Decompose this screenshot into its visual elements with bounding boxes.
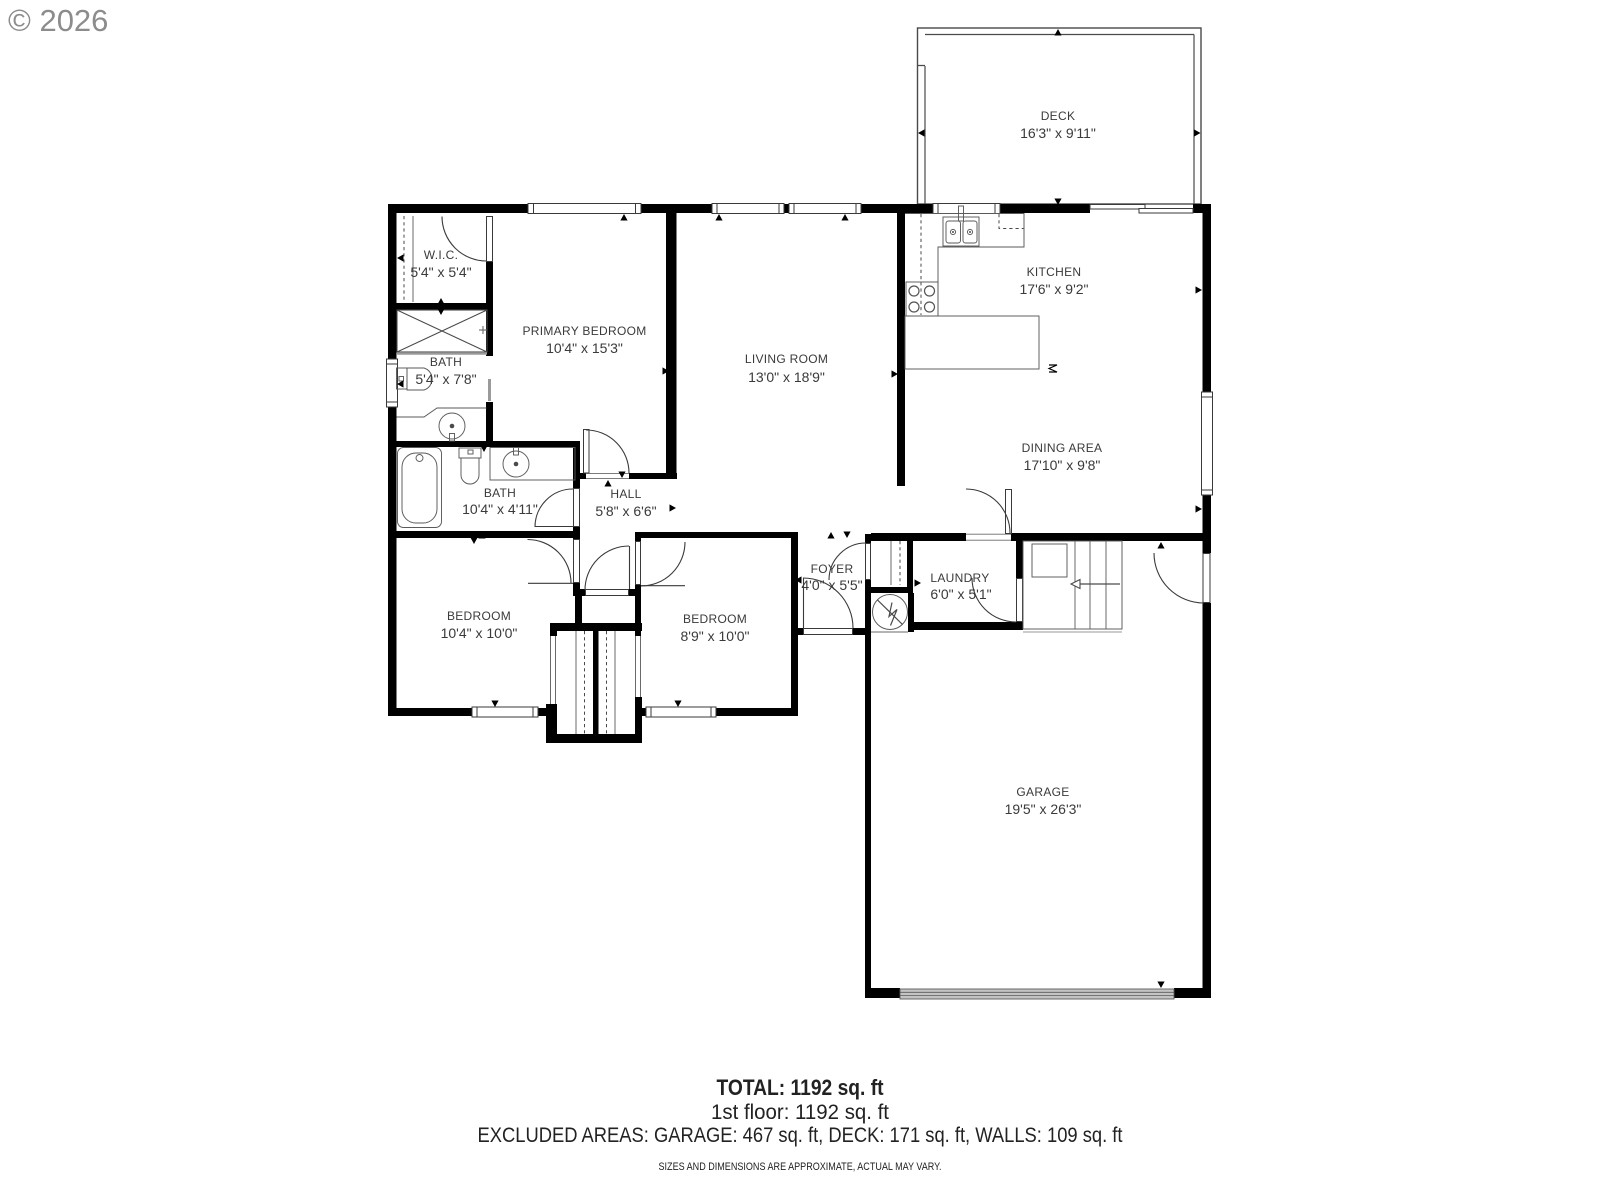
svg-text:8'9" x 10'0": 8'9" x 10'0" (681, 628, 750, 644)
svg-text:KITCHEN: KITCHEN (1027, 265, 1082, 279)
svg-text:16'3" x 9'11": 16'3" x 9'11" (1020, 125, 1096, 141)
svg-text:17'10" x 9'8": 17'10" x 9'8" (1024, 457, 1101, 473)
svg-text:10'4" x 15'3": 10'4" x 15'3" (546, 340, 623, 356)
svg-text:SIZES AND DIMENSIONS ARE APPRO: SIZES AND DIMENSIONS ARE APPROXIMATE, AC… (659, 1161, 942, 1173)
svg-text:5'8" x 6'6": 5'8" x 6'6" (595, 503, 656, 519)
svg-text:FOYER: FOYER (811, 562, 854, 576)
svg-text:LAUNDRY: LAUNDRY (930, 571, 989, 585)
svg-text:BEDROOM: BEDROOM (447, 609, 511, 623)
svg-text:PRIMARY BEDROOM: PRIMARY BEDROOM (522, 324, 646, 338)
svg-text:TOTAL: 1192 sq. ft: TOTAL: 1192 sq. ft (717, 1075, 884, 1100)
svg-text:DECK: DECK (1041, 109, 1076, 123)
svg-text:DINING AREA: DINING AREA (1022, 441, 1103, 455)
svg-text:LIVING ROOM: LIVING ROOM (745, 352, 828, 366)
svg-text:17'6" x 9'2": 17'6" x 9'2" (1020, 281, 1089, 297)
svg-text:5'4" x 7'8": 5'4" x 7'8" (415, 371, 476, 387)
svg-text:19'5" x 26'3": 19'5" x 26'3" (1005, 801, 1082, 817)
svg-text:10'4" x 4'11": 10'4" x 4'11" (462, 501, 538, 517)
svg-text:EXCLUDED AREAS: GARAGE: 467 sq: EXCLUDED AREAS: GARAGE: 467 sq. ft, DECK… (478, 1124, 1123, 1147)
svg-text:1st floor: 1192 sq. ft: 1st floor: 1192 sq. ft (711, 1101, 889, 1124)
svg-text:HALL: HALL (610, 487, 641, 501)
svg-text:BEDROOM: BEDROOM (683, 612, 747, 626)
svg-text:6'0" x 5'1": 6'0" x 5'1" (930, 586, 991, 602)
svg-text:BATH: BATH (484, 486, 516, 500)
svg-text:13'0" x 18'9": 13'0" x 18'9" (748, 369, 825, 385)
svg-text:© 2026: © 2026 (8, 3, 108, 38)
svg-text:GARAGE: GARAGE (1016, 785, 1069, 799)
svg-text:W.I.C.: W.I.C. (424, 248, 458, 262)
svg-text:5'4" x 5'4": 5'4" x 5'4" (410, 264, 471, 280)
svg-text:10'4" x 10'0": 10'4" x 10'0" (441, 625, 518, 641)
svg-text:4'0" x 5'5": 4'0" x 5'5" (801, 577, 862, 593)
svg-text:BATH: BATH (430, 355, 462, 369)
